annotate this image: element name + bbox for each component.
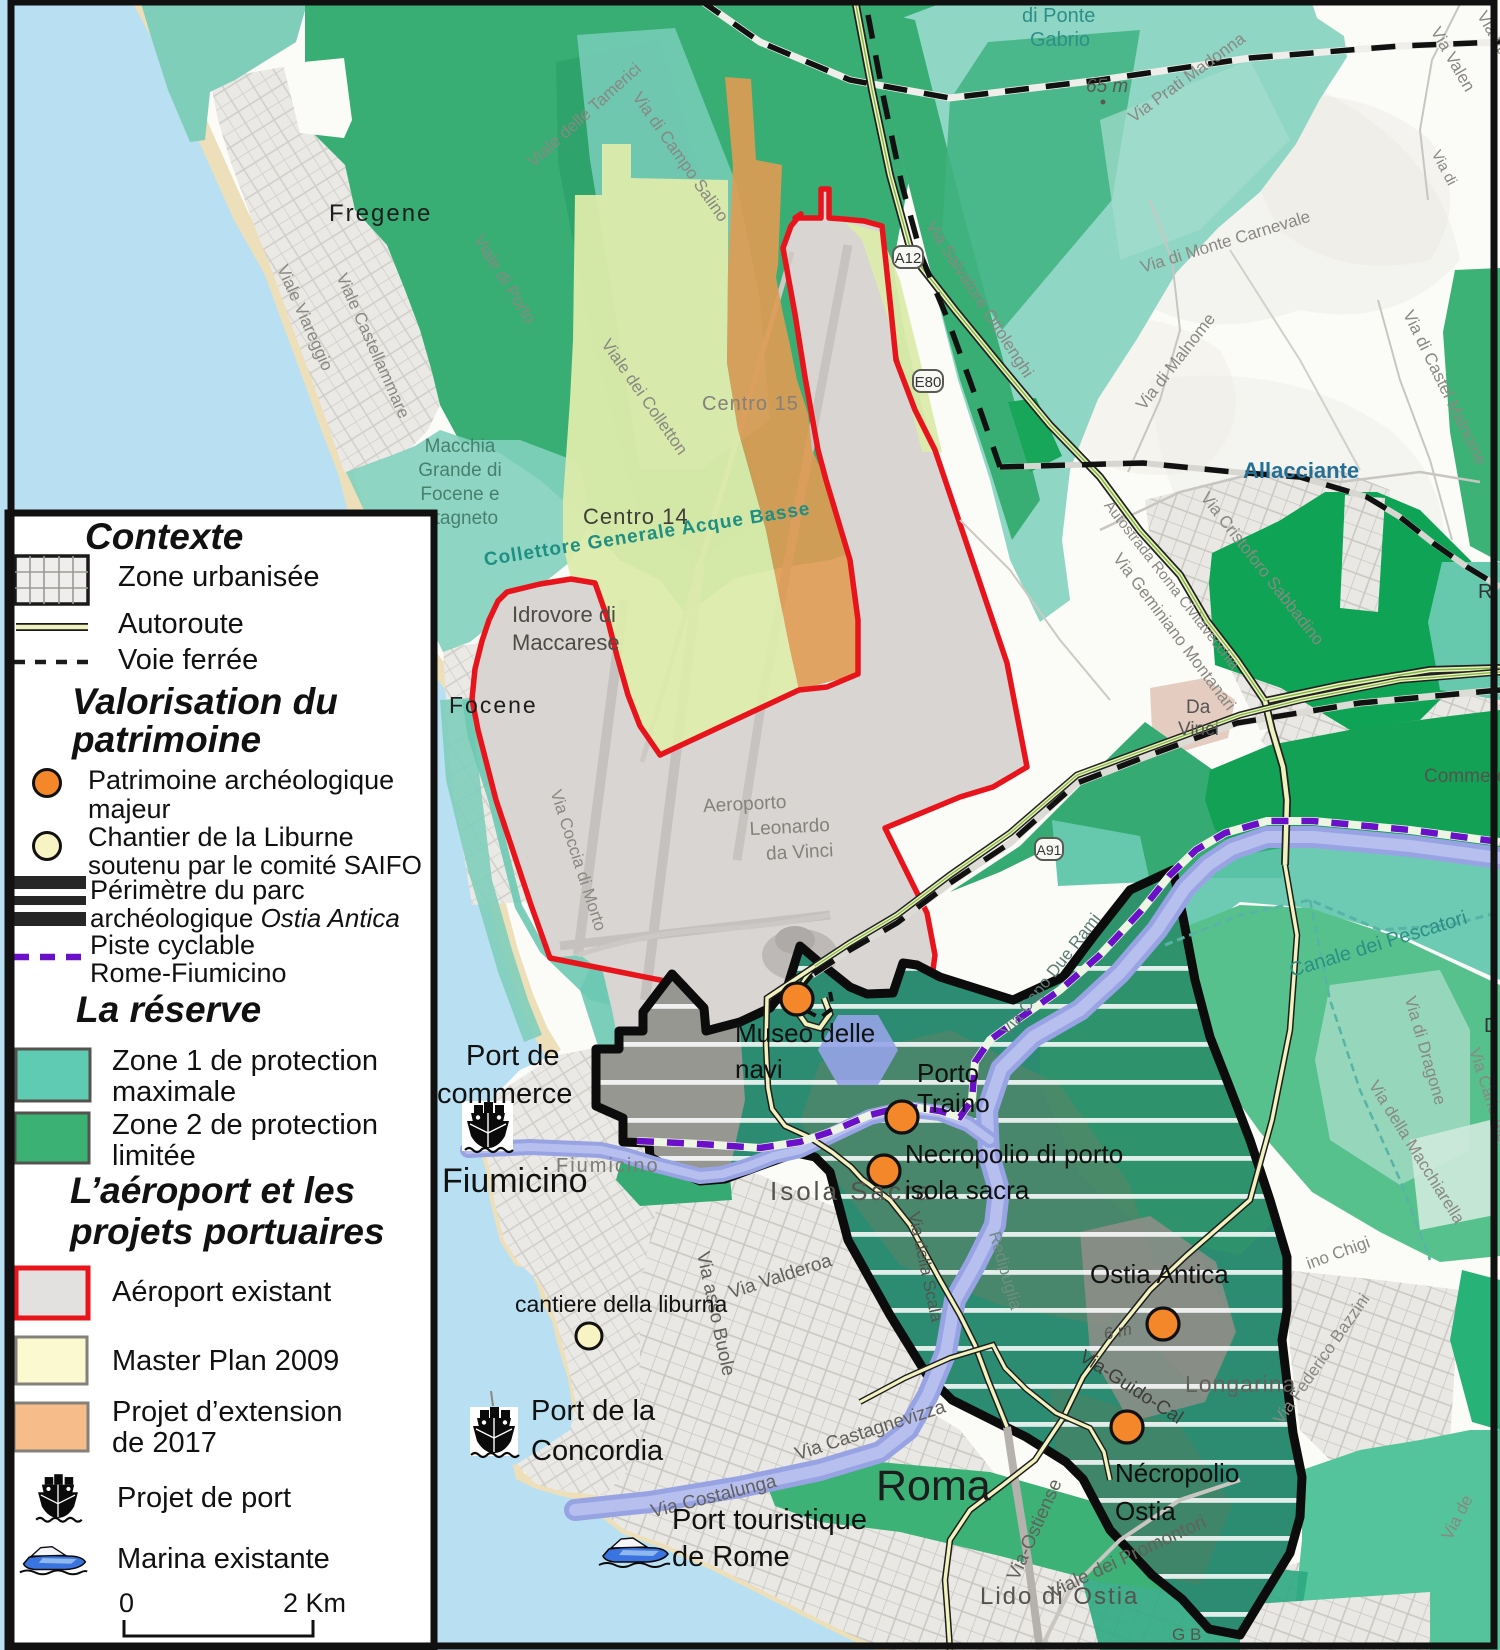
svg-text:Chantier de la Liburne: Chantier de la Liburne [88, 822, 354, 852]
svg-text:majeur: majeur [88, 794, 171, 824]
svg-text:Necropolio di porto: Necropolio di porto [905, 1139, 1123, 1169]
svg-text:archéologique Ostia Antica: archéologique Ostia Antica [90, 903, 400, 933]
svg-text:Porto: Porto [917, 1058, 979, 1088]
svg-text:Focene: Focene [449, 692, 538, 718]
svg-text:projets portuaires: projets portuaires [69, 1211, 385, 1252]
svg-text:R: R [1478, 581, 1492, 603]
svg-text:0: 0 [119, 1588, 134, 1618]
svg-text:Zone 2 de protection: Zone 2 de protection [112, 1109, 378, 1141]
svg-text:G B: G B [1172, 1625, 1201, 1644]
svg-text:Centro 15: Centro 15 [702, 393, 799, 415]
svg-text:Macchia: Macchia [425, 436, 496, 457]
svg-text:65 m: 65 m [1086, 76, 1128, 97]
svg-text:Ostia: Ostia [1115, 1496, 1176, 1526]
svg-text:de Rome: de Rome [672, 1541, 790, 1573]
svg-text:Patrimoine archéologique: Patrimoine archéologique [88, 765, 394, 795]
svg-text:Aéroport existant: Aéroport existant [112, 1276, 331, 1308]
svg-text:Commerce: Commerce [1424, 766, 1500, 787]
svg-text:Périmètre du parc: Périmètre du parc [90, 875, 305, 905]
svg-text:Voie ferrée: Voie ferrée [118, 644, 258, 676]
svg-text:2 Km: 2 Km [283, 1588, 346, 1618]
svg-text:Contexte: Contexte [85, 516, 243, 557]
svg-text:Focene e: Focene e [420, 484, 499, 505]
svg-text:Marina existante: Marina existante [117, 1543, 330, 1575]
svg-text:de 2017: de 2017 [112, 1427, 217, 1459]
svg-text:Allacciante: Allacciante [1243, 458, 1359, 483]
svg-text:Roma: Roma [876, 1462, 991, 1510]
svg-text:Valorisation du: Valorisation du [72, 681, 338, 722]
svg-text:Autoroute: Autoroute [118, 608, 244, 640]
svg-text:Leonardo: Leonardo [749, 815, 830, 840]
svg-text:Museo delle: Museo delle [735, 1018, 875, 1048]
svg-text:Nécropolio: Nécropolio [1115, 1458, 1239, 1488]
svg-text:Zone 1 de protection: Zone 1 de protection [112, 1045, 378, 1077]
svg-text:di Ponte: di Ponte [1022, 5, 1095, 27]
svg-text:A91: A91 [1037, 842, 1062, 858]
svg-text:La réserve: La réserve [76, 989, 261, 1030]
svg-text:Piste cyclable: Piste cyclable [90, 930, 255, 960]
svg-text:Concordia: Concordia [531, 1435, 664, 1467]
svg-text:Projet de port: Projet de port [117, 1482, 291, 1514]
svg-text:patrimoine: patrimoine [71, 719, 261, 760]
svg-text:Vinci: Vinci [1178, 719, 1219, 740]
svg-text:Master Plan 2009: Master Plan 2009 [112, 1345, 339, 1377]
svg-text:da Vinci: da Vinci [766, 840, 834, 864]
svg-text:Longarina: Longarina [1185, 1371, 1296, 1397]
svg-text:Port de: Port de [466, 1040, 560, 1072]
svg-text:Ostia Antica: Ostia Antica [1090, 1259, 1229, 1289]
svg-text:Da: Da [1186, 697, 1211, 718]
svg-text:cantiere della liburna: cantiere della liburna [515, 1291, 727, 1317]
svg-text:Aeroporto: Aeroporto [702, 792, 786, 817]
svg-text:Fregene: Fregene [329, 200, 432, 227]
svg-text:Projet d’extension: Projet d’extension [112, 1396, 343, 1428]
svg-text:Gabrio: Gabrio [1030, 29, 1090, 51]
svg-text:commerce: commerce [437, 1078, 572, 1110]
svg-text:A12: A12 [895, 250, 922, 267]
svg-text:Rome-Fiumicino: Rome-Fiumicino [90, 958, 287, 988]
svg-text:E80: E80 [915, 374, 942, 391]
svg-text:Port touristique: Port touristique [672, 1504, 867, 1536]
svg-text:Zone urbanisée: Zone urbanisée [118, 561, 320, 593]
svg-text:Maccarese: Maccarese [512, 630, 620, 655]
svg-text:Grande di: Grande di [418, 460, 501, 481]
svg-text:isola sacra: isola sacra [905, 1175, 1030, 1205]
svg-text:Fiumicino: Fiumicino [556, 1155, 660, 1177]
svg-text:maximale: maximale [112, 1076, 236, 1108]
svg-text:navi: navi [735, 1054, 783, 1084]
svg-text:L’aéroport et les: L’aéroport et les [70, 1170, 355, 1211]
svg-text:Traino: Traino [917, 1088, 990, 1118]
svg-text:limitée: limitée [112, 1140, 196, 1172]
svg-text:Idrovore di: Idrovore di [512, 602, 616, 627]
svg-text:Port de la: Port de la [531, 1395, 656, 1427]
